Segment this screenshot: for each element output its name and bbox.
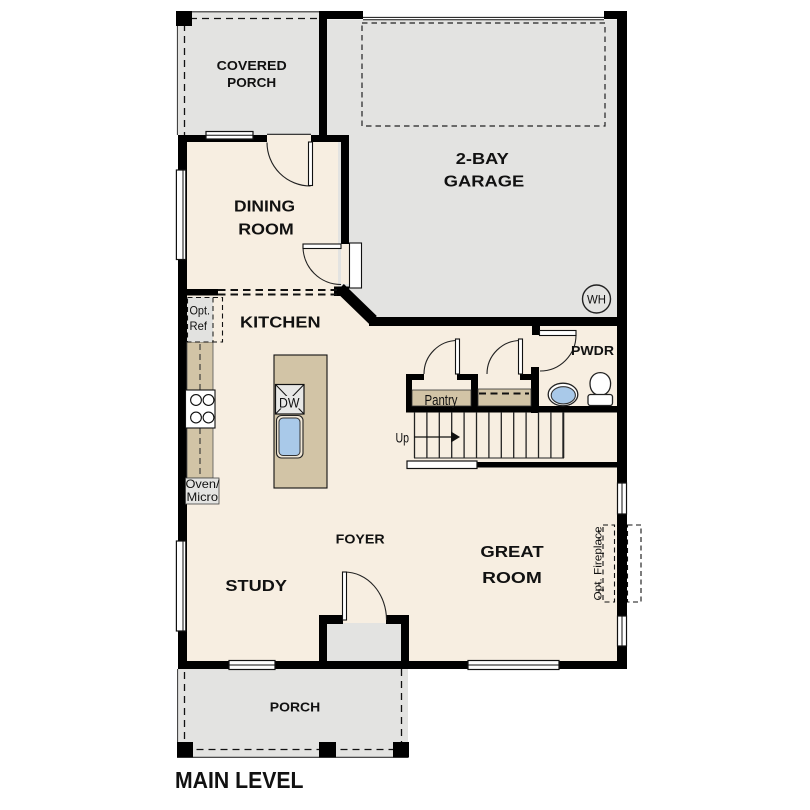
svg-text:PWDR: PWDR xyxy=(571,343,614,358)
svg-text:GARAGE: GARAGE xyxy=(444,174,525,191)
svg-text:FOYER: FOYER xyxy=(336,532,385,547)
svg-text:Up: Up xyxy=(396,431,410,446)
svg-text:WH: WH xyxy=(587,295,606,307)
svg-text:Ref: Ref xyxy=(190,319,208,333)
svg-text:COVERED: COVERED xyxy=(217,58,287,73)
svg-text:2-BAY: 2-BAY xyxy=(456,151,509,168)
svg-text:DW: DW xyxy=(279,395,300,411)
svg-text:STUDY: STUDY xyxy=(225,578,287,595)
svg-text:Micro: Micro xyxy=(187,490,219,504)
svg-text:Opt.: Opt. xyxy=(190,304,211,318)
svg-text:Oven/: Oven/ xyxy=(186,477,221,491)
svg-text:ROOM: ROOM xyxy=(482,570,542,587)
svg-text:Pantry: Pantry xyxy=(425,393,459,409)
svg-text:PORCH: PORCH xyxy=(227,75,276,90)
svg-text:DINING: DINING xyxy=(234,199,295,216)
svg-text:GREAT: GREAT xyxy=(480,544,544,561)
svg-text:Opt. Fireplace: Opt. Fireplace xyxy=(593,527,605,601)
svg-text:ROOM: ROOM xyxy=(238,222,294,239)
svg-text:KITCHEN: KITCHEN xyxy=(240,315,321,332)
svg-text:MAIN LEVEL: MAIN LEVEL xyxy=(175,767,304,793)
svg-text:PORCH: PORCH xyxy=(270,700,321,715)
